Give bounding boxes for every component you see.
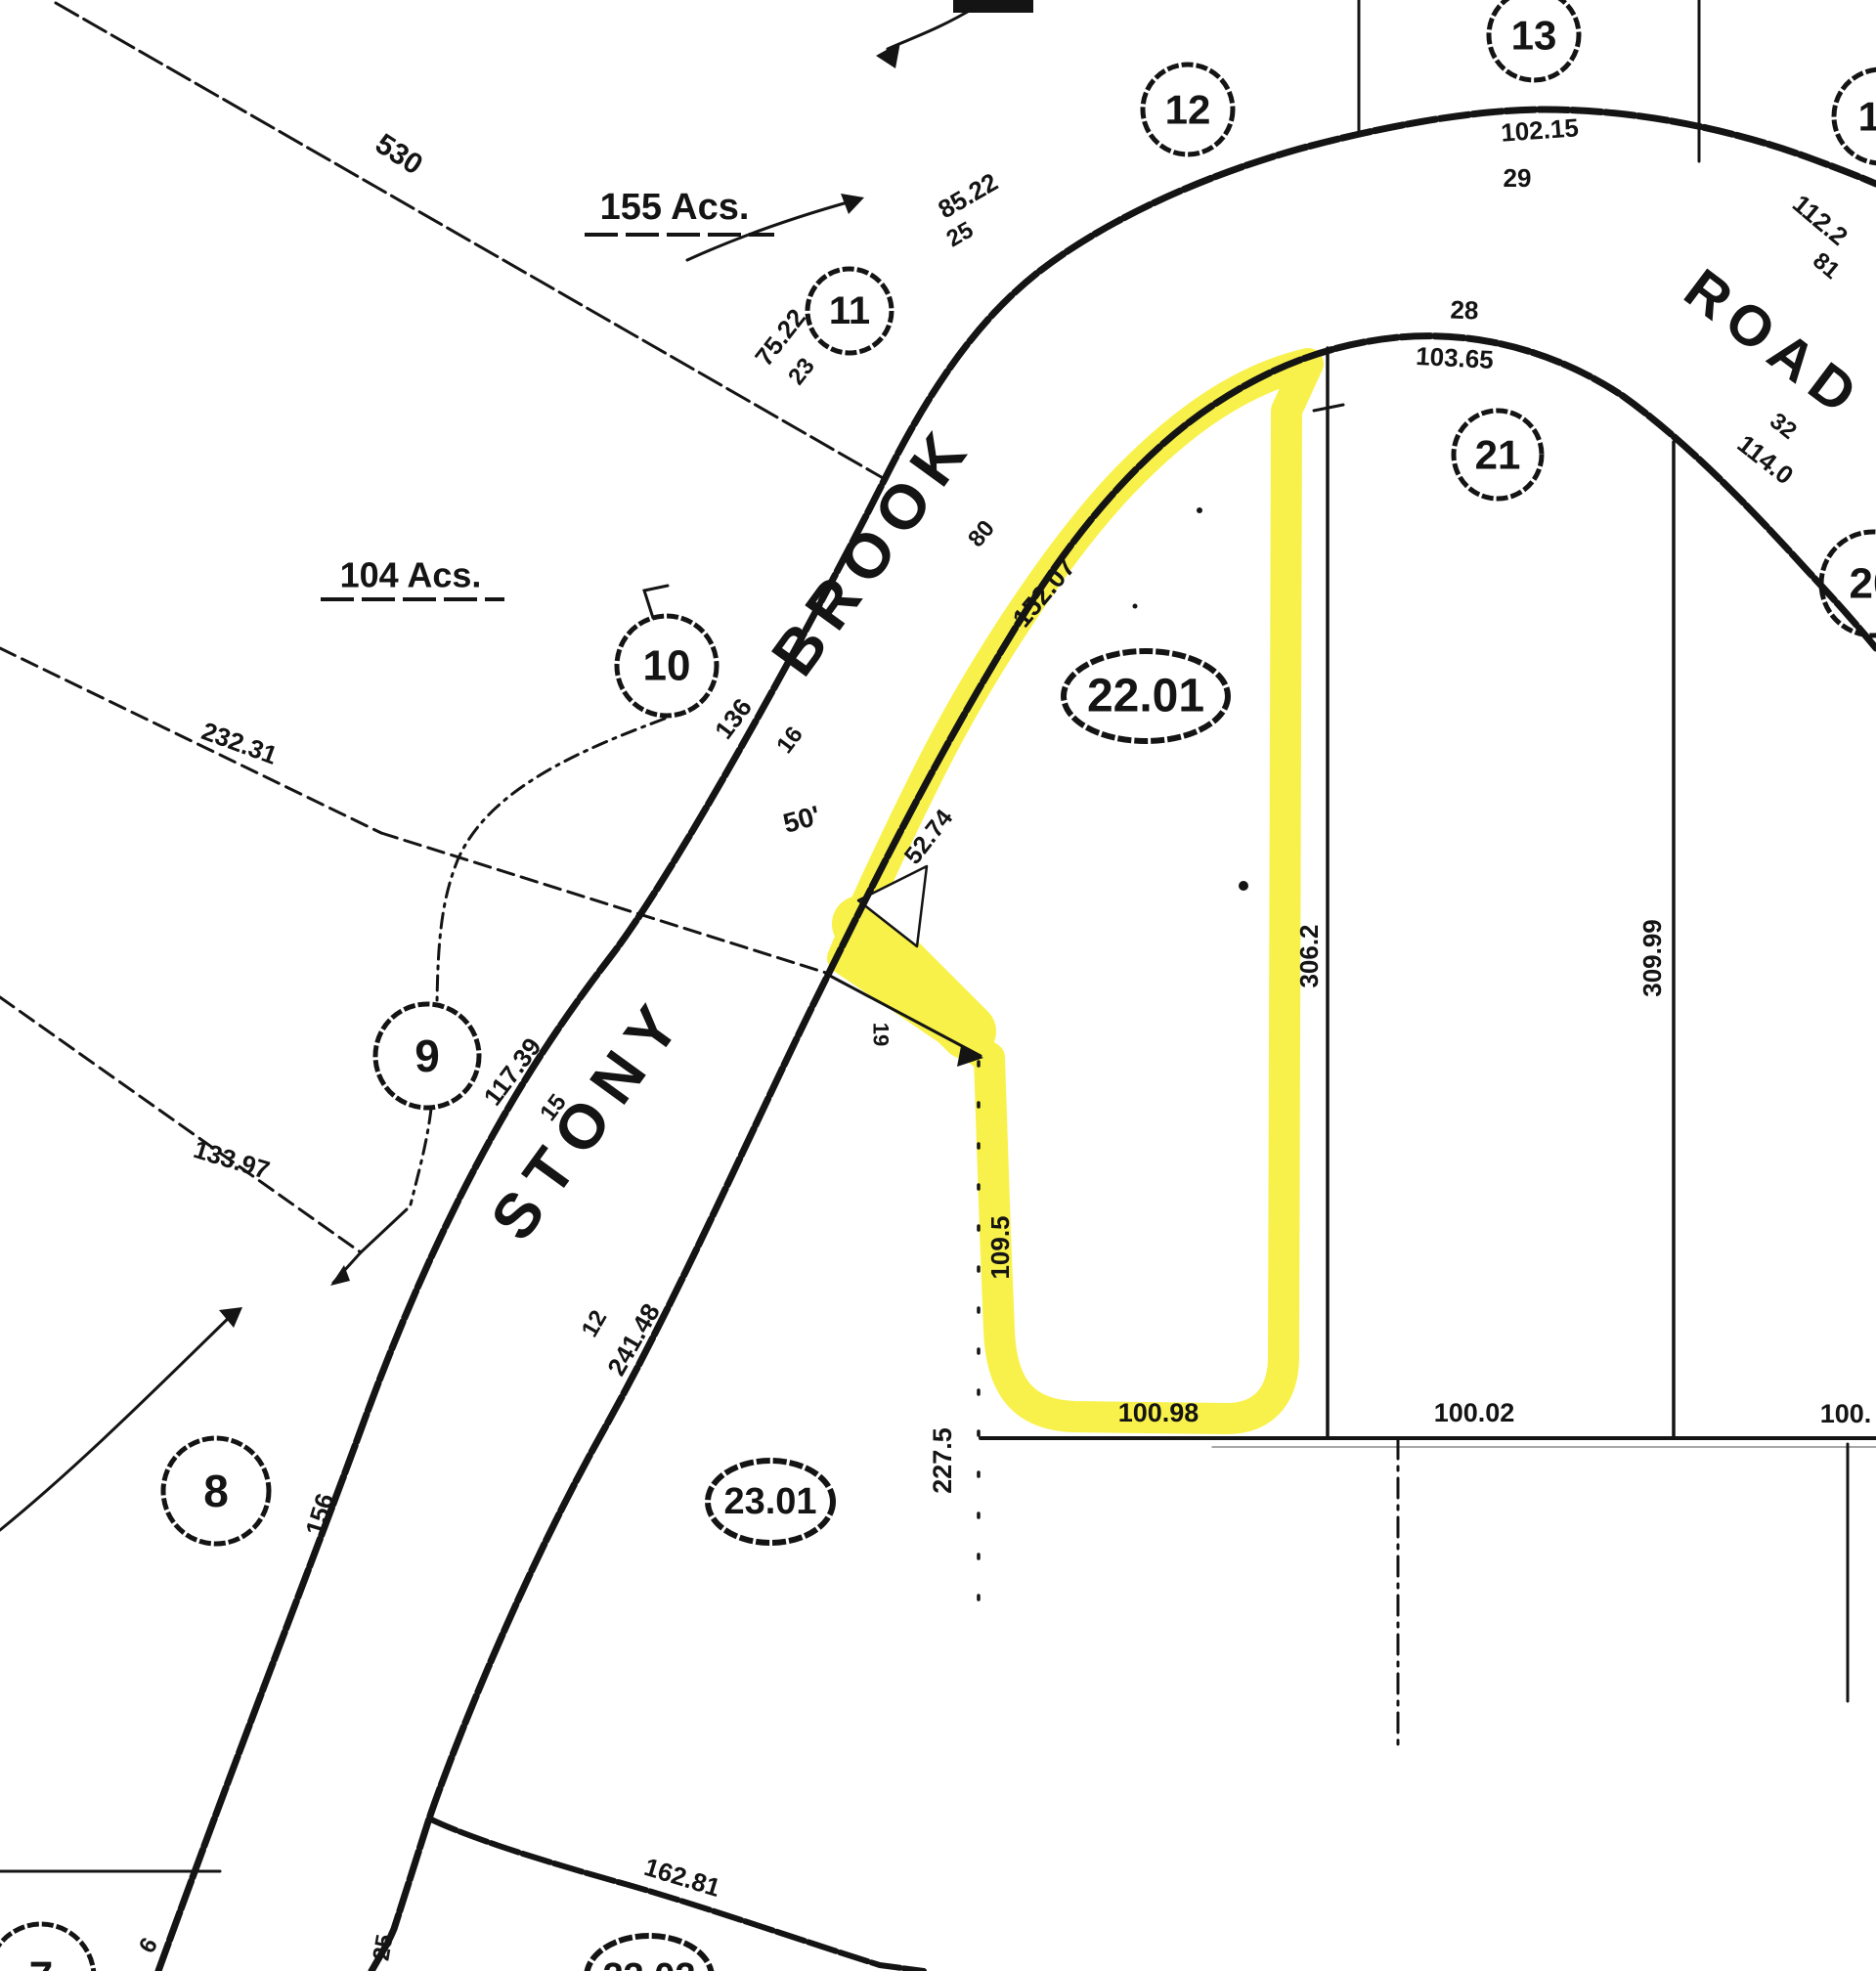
parcel-bubble-8: 8 — [163, 1438, 269, 1544]
dimension-label-19: 19 — [869, 1023, 894, 1046]
parcel-bubble-10: 10 — [617, 616, 717, 716]
dimension-label-25: 25 — [368, 1933, 398, 1963]
dimension-label-16: 16 — [771, 722, 808, 759]
acreage-text-0: 155 Acs. — [600, 187, 750, 228]
dimension-label-103_65: 103.65 — [1416, 341, 1495, 374]
parcel-number-11: 11 — [829, 289, 870, 332]
dimension-label-306_2: 306.2 — [1294, 924, 1324, 987]
dimension-label-241_48: 241.48 — [601, 1298, 666, 1380]
dimension-label-50_: 50' — [780, 800, 824, 839]
boundary-133-line — [0, 997, 361, 1252]
tax-map-page: 7891011121314202122.0123.0123.02155 Acs.… — [0, 0, 1876, 1971]
scan-speck-2 — [1239, 881, 1248, 891]
parcel-number-9: 9 — [414, 1030, 440, 1081]
parcel-number-22.01: 22.01 — [1087, 671, 1204, 723]
parcel-number-20: 20 — [1850, 560, 1876, 608]
dimension-label-100_98: 100.98 — [1118, 1398, 1200, 1427]
parcel-number-23.02: 23.02 — [602, 1956, 695, 1971]
arrowhead-top-hook — [876, 42, 900, 68]
dimension-label-109_5: 109.5 — [985, 1215, 1015, 1279]
dimension-label-29: 29 — [1504, 163, 1532, 193]
dimension-label-85_22: 85.22 — [933, 167, 1002, 225]
tax-map-svg: 7891011121314202122.0123.0123.02155 Acs.… — [0, 0, 1876, 1971]
parcel-bubble-22.01: 22.01 — [1064, 651, 1228, 741]
dimension-label-100_02: 100.02 — [1434, 1398, 1515, 1427]
parcel-number-8: 8 — [203, 1466, 229, 1516]
top-black-bar — [953, 0, 1033, 13]
road-name-brook: BROOK — [758, 411, 986, 688]
parcel-bubble-7: 7 — [0, 1924, 94, 1971]
parcel-number-14: 14 — [1858, 94, 1876, 140]
parcel-bubble-21: 21 — [1454, 411, 1542, 499]
dimension-label-133_97: 133.97 — [191, 1134, 274, 1185]
parcel-bubble-11: 11 — [807, 269, 892, 353]
dimension-label-227_5: 227.5 — [928, 1427, 957, 1494]
acreage-label-0: 155 Acs. — [585, 187, 774, 235]
parcel-bubble-23.02: 23.02 — [587, 1936, 712, 1971]
dimension-label-530: 530 — [370, 128, 428, 182]
boundary-50-line — [381, 833, 826, 973]
dimension-label-32: 32 — [1765, 408, 1802, 445]
acreage-text-1: 104 Acs. — [340, 555, 482, 595]
parcel-bubble-23.01: 23.01 — [708, 1461, 833, 1543]
dimension-label-112_2: 112.2 — [1787, 189, 1854, 251]
boundary-232-line — [0, 648, 381, 833]
scan-speck-1 — [1133, 604, 1138, 609]
parcel-number-21: 21 — [1475, 432, 1521, 478]
boundary-530-line — [56, 3, 885, 479]
arrow-lot8-line — [0, 1312, 235, 1530]
dimension-label-23: 23 — [783, 353, 820, 390]
parcel-bubble-9: 9 — [375, 1004, 479, 1108]
road-name-road: ROAD — [1673, 257, 1875, 432]
parcel-number-7: 7 — [29, 1953, 53, 1971]
dimension-label-80: 80 — [963, 515, 1000, 552]
dimension-label-6: 6 — [134, 1933, 163, 1957]
road-name-stony: STONY — [477, 983, 700, 1252]
acreage-label-1: 104 Acs. — [321, 555, 504, 600]
dimension-label-81: 81 — [1808, 247, 1845, 285]
parcel-bubble-13: 13 — [1489, 0, 1579, 80]
dimension-label-12: 12 — [577, 1306, 613, 1342]
parcel-number-12: 12 — [1165, 87, 1211, 133]
scan-speck-0 — [1197, 507, 1202, 513]
dimension-label-102_15: 102.15 — [1500, 112, 1579, 147]
parcel-number-13: 13 — [1511, 13, 1557, 59]
parcel-bubble-12: 12 — [1143, 65, 1233, 154]
parcel-number-10: 10 — [643, 642, 691, 690]
circle10-tick — [644, 586, 668, 618]
dimension-label-28: 28 — [1450, 295, 1479, 326]
parcel-number-23.01: 23.01 — [723, 1481, 816, 1522]
parcel-bubble-14: 14 — [1834, 69, 1876, 163]
dimension-label-309_99: 309.99 — [1637, 919, 1667, 997]
road-inner-branch — [429, 1818, 924, 1971]
dimension-label-156: 156 — [299, 1490, 339, 1539]
dimension-label-100_: 100. — [1820, 1399, 1872, 1428]
dimension-label-232_31: 232.31 — [198, 716, 282, 769]
